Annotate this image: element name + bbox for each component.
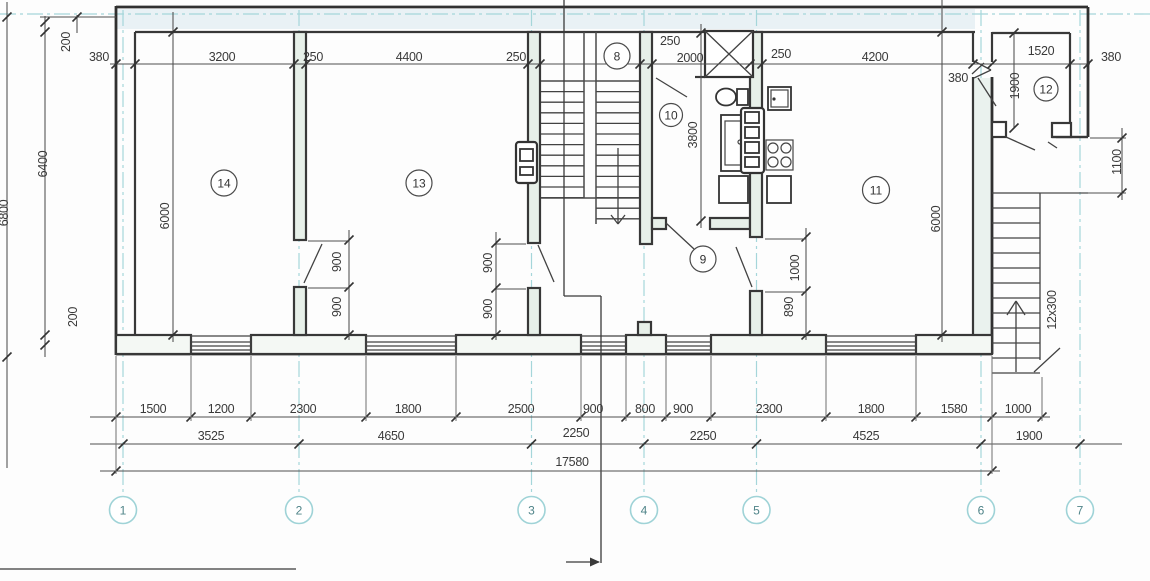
svg-text:1800: 1800 [395,402,422,416]
svg-text:1000: 1000 [1005,402,1032,416]
svg-text:2500: 2500 [508,402,535,416]
svg-text:5: 5 [753,504,760,518]
svg-text:1580: 1580 [941,402,968,416]
svg-text:3200: 3200 [209,50,236,64]
svg-text:8: 8 [614,50,621,64]
svg-text:12: 12 [1039,83,1053,97]
svg-text:2: 2 [296,504,303,518]
svg-text:900: 900 [673,402,693,416]
svg-text:2250: 2250 [690,429,717,443]
svg-text:1900: 1900 [1016,429,1043,443]
svg-text:4200: 4200 [862,50,889,64]
svg-text:6000: 6000 [158,202,172,229]
svg-text:900: 900 [481,253,495,273]
svg-text:900: 900 [481,299,495,319]
svg-text:6: 6 [978,504,985,518]
svg-text:17580: 17580 [555,455,589,469]
svg-text:3: 3 [528,504,535,518]
svg-text:200: 200 [66,307,80,327]
svg-text:6800: 6800 [0,199,11,226]
svg-text:6400: 6400 [36,150,50,177]
svg-text:1200: 1200 [208,402,235,416]
svg-text:1000: 1000 [788,254,802,281]
svg-text:250: 250 [660,34,680,48]
svg-text:380: 380 [89,50,109,64]
svg-text:800: 800 [635,402,655,416]
svg-text:4400: 4400 [396,50,423,64]
svg-text:380: 380 [1101,50,1121,64]
svg-text:250: 250 [303,50,323,64]
svg-text:4650: 4650 [378,429,405,443]
svg-text:12x300: 12x300 [1045,290,1059,330]
svg-text:11: 11 [870,184,883,198]
svg-text:900: 900 [330,252,344,272]
svg-text:9: 9 [700,253,707,267]
svg-text:380: 380 [948,71,968,85]
svg-text:2250: 2250 [563,426,590,440]
svg-text:2300: 2300 [290,402,317,416]
svg-text:900: 900 [583,402,603,416]
svg-text:14: 14 [217,177,231,191]
svg-text:250: 250 [771,47,791,61]
svg-text:1500: 1500 [140,402,167,416]
svg-text:1800: 1800 [858,402,885,416]
svg-text:250: 250 [506,50,526,64]
svg-text:7: 7 [1077,504,1084,518]
svg-text:1: 1 [120,504,127,518]
svg-text:890: 890 [782,297,796,317]
svg-text:2000: 2000 [677,51,704,65]
svg-text:3525: 3525 [198,429,225,443]
svg-text:13: 13 [412,177,426,191]
svg-text:3800: 3800 [686,121,700,148]
svg-text:2300: 2300 [756,402,783,416]
svg-text:6000: 6000 [929,205,943,232]
svg-text:1900: 1900 [1008,72,1022,99]
svg-text:1100: 1100 [1110,149,1124,175]
svg-text:1520: 1520 [1028,44,1055,58]
svg-text:4: 4 [641,504,648,518]
svg-text:900: 900 [330,297,344,317]
svg-text:10: 10 [664,109,678,123]
svg-text:4525: 4525 [853,429,880,443]
svg-text:200: 200 [59,32,73,52]
